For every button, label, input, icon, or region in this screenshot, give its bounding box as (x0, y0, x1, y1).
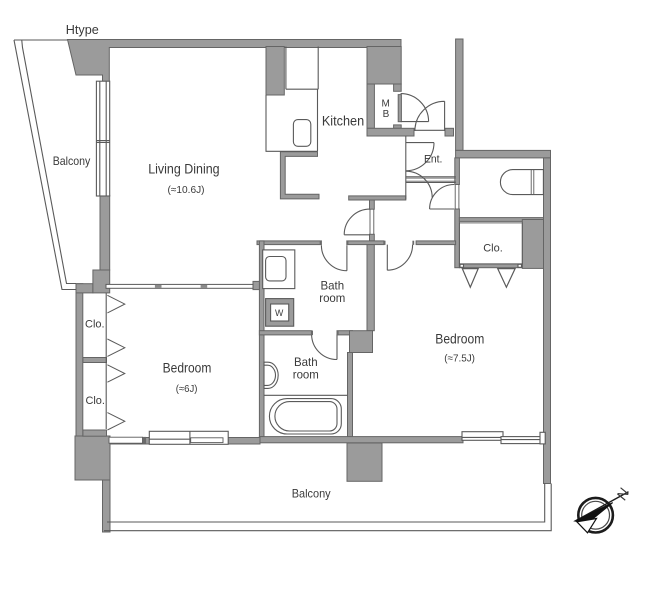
svg-text:Balcony: Balcony (53, 154, 91, 168)
svg-text:Htype: Htype (66, 22, 99, 37)
svg-text:Kitchen: Kitchen (322, 113, 364, 128)
svg-text:(≈6J): (≈6J) (176, 383, 198, 395)
svg-text:B: B (383, 109, 390, 120)
svg-text:Living Dining: Living Dining (148, 160, 219, 176)
svg-text:Clo.: Clo. (85, 318, 105, 330)
svg-text:Clo.: Clo. (483, 243, 503, 255)
svg-text:Ent.: Ent. (424, 154, 443, 166)
svg-text:Bedroom: Bedroom (163, 359, 212, 375)
svg-text:M: M (382, 98, 390, 109)
svg-text:W: W (275, 308, 284, 318)
svg-text:(≈7.5J): (≈7.5J) (444, 353, 475, 365)
svg-text:room: room (293, 368, 319, 382)
svg-text:room: room (319, 291, 345, 305)
svg-text:Clo.: Clo. (85, 395, 105, 407)
svg-text:Balcony: Balcony (292, 486, 331, 500)
svg-text:Bedroom: Bedroom (435, 331, 484, 347)
svg-text:(≈10.6J): (≈10.6J) (167, 184, 204, 196)
